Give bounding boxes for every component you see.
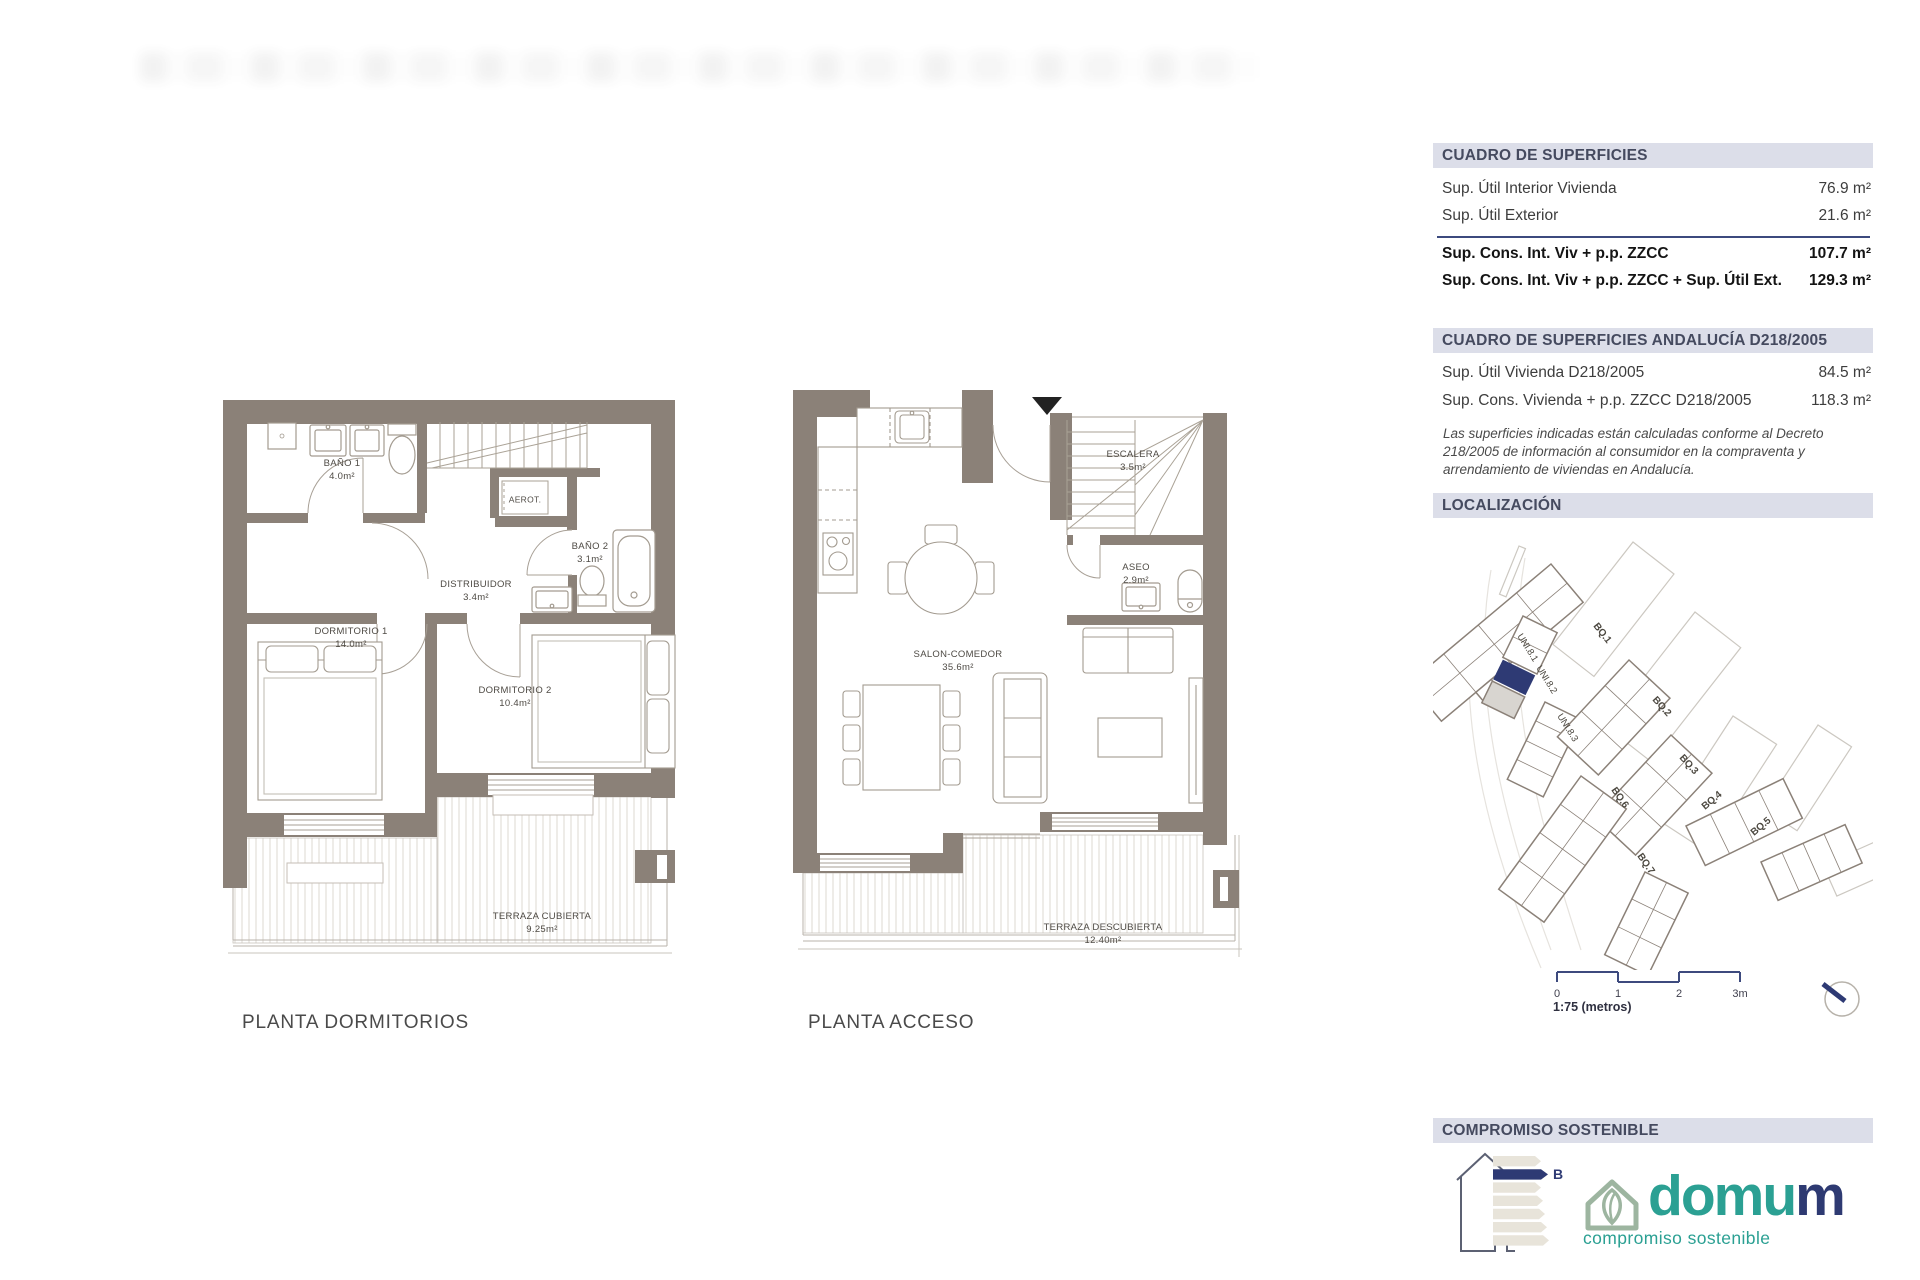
- room-label-terraza-descubierta: TERRAZA DESCUBIERTA12.40m²: [1044, 922, 1163, 948]
- table-row: Sup. Útil Exterior 21.6 m²: [1433, 207, 1873, 225]
- room-label-escalera: ESCALERA3.5m²: [1106, 449, 1159, 475]
- map-label-bq7: BQ.7: [1635, 851, 1657, 876]
- row-value: 107.7 m²: [1809, 245, 1871, 263]
- table-divider: [1437, 236, 1870, 238]
- aseo-door-arc: [1067, 545, 1100, 578]
- surfaces-table-header: CUADRO DE SUPERFICIES: [1433, 143, 1873, 168]
- energy-rating-icon: B: [1447, 1150, 1573, 1270]
- row-value: 129.3 m²: [1809, 272, 1871, 290]
- bed-dormitorio1: [258, 642, 382, 800]
- domum-house-leaf-icon: [1580, 1170, 1646, 1234]
- scale-caption: 1:75 (metros): [1553, 1000, 1632, 1014]
- table-total-row: Sup. Cons. Int. Viv + p.p. ZZCC + Sup. Ú…: [1433, 272, 1873, 290]
- row-value: 21.6 m²: [1818, 207, 1871, 225]
- scale-tick-3: 3m: [1732, 988, 1747, 1000]
- scale-tick-0: 0: [1554, 988, 1560, 1000]
- room-label-aseo: ASEO2.9m²: [1122, 562, 1150, 588]
- row-label: Sup. Útil Exterior: [1442, 207, 1558, 225]
- energy-bar-selected: [1493, 1169, 1548, 1179]
- tv-unit: [1189, 678, 1203, 803]
- entry-door-arc: [993, 425, 1050, 482]
- site-map: UNI.8.1 UNI.8.2 UNI.8.3 BQ.1 BQ.2 BQ.3 B…: [1433, 520, 1873, 970]
- room-label-bano2: BAÑO 23.1m²: [572, 541, 609, 567]
- floorplan-planta-acceso: [790, 385, 1250, 970]
- room-label-distribuidor: DISTRIBUIDOR3.4m²: [440, 579, 512, 605]
- plan-title-dormitorios: PLANTA DORMITORIOS: [242, 1012, 469, 1034]
- plan-title-acceso: PLANTA ACCESO: [808, 1012, 974, 1034]
- bed-dormitorio2: [532, 635, 675, 768]
- row-label: Sup. Cons. Int. Viv + p.p. ZZCC: [1442, 245, 1669, 263]
- table-row: Sup. Útil Vivienda D218/2005 84.5 m²: [1433, 364, 1873, 382]
- legal-note: Las superficies indicadas están calculad…: [1443, 425, 1869, 478]
- room-label-salon-comedor: SALON-COMEDOR35.6m²: [914, 649, 1003, 675]
- table-row: Sup. Útil Interior Vivienda 76.9 m²: [1433, 180, 1873, 198]
- room-label-aerot: AEROT.: [509, 494, 542, 505]
- dining-table: [843, 685, 960, 790]
- floorplan-planta-dormitorios: [220, 395, 680, 970]
- brand-suffix: m: [1795, 1164, 1844, 1228]
- footer-header: COMPROMISO SOSTENIBLE: [1433, 1118, 1873, 1143]
- scan-artifact-band: [140, 52, 1260, 82]
- scale-tick-1: 1: [1615, 988, 1621, 1000]
- row-value: 76.9 m²: [1818, 180, 1871, 198]
- coffee-table: [1098, 718, 1162, 757]
- andalucia-table-header: CUADRO DE SUPERFICIES ANDALUCÍA D218/200…: [1433, 328, 1873, 353]
- bench-sofa: [1083, 628, 1173, 673]
- room-label-terraza-cubierta: TERRAZA CUBIERTA9.25m²: [493, 911, 591, 937]
- row-label: Sup. Útil Vivienda D218/2005: [1442, 364, 1644, 382]
- row-label: Sup. Cons. Vivienda + p.p. ZZCC D218/200…: [1442, 392, 1751, 410]
- brand-primary: domu: [1648, 1164, 1795, 1228]
- room-label-dormitorio1: DORMITORIO 114.0m²: [314, 626, 387, 652]
- brand-wordmark: domum: [1648, 1168, 1844, 1225]
- table-total-row: Sup. Cons. Int. Viv + p.p. ZZCC 107.7 m²: [1433, 245, 1873, 263]
- row-value: 118.3 m²: [1811, 392, 1871, 410]
- scale-bar: 0 1 2 3m: [1552, 968, 1772, 1002]
- room-label-dormitorio2: DORMITORIO 210.4m²: [478, 685, 551, 711]
- scale-tick-2: 2: [1676, 988, 1682, 1000]
- stairs: [1067, 420, 1203, 535]
- map-label-uni82: UNI.8.2: [1533, 664, 1559, 696]
- floorplan-sheet: BAÑO 14.0m² BAÑO 23.1m² DISTRIBUIDOR3.4m…: [0, 0, 1920, 1280]
- entrance-arrow: [1032, 397, 1062, 415]
- north-compass-icon: [1810, 965, 1874, 1029]
- row-value: 84.5 m²: [1818, 364, 1871, 382]
- row-label: Sup. Cons. Int. Viv + p.p. ZZCC + Sup. Ú…: [1442, 272, 1782, 290]
- table-row: Sup. Cons. Vivienda + p.p. ZZCC D218/200…: [1433, 392, 1873, 410]
- room-label-bano1: BAÑO 14.0m²: [324, 458, 361, 484]
- stairs: [427, 422, 587, 468]
- round-table: [888, 525, 994, 614]
- localization-header: LOCALIZACIÓN: [1433, 493, 1873, 518]
- sofa: [993, 673, 1047, 803]
- brand-tagline: compromiso sostenible: [1583, 1228, 1770, 1249]
- energy-rating-letter: B: [1553, 1166, 1563, 1182]
- energy-bars: [1493, 1156, 1549, 1246]
- row-label: Sup. Útil Interior Vivienda: [1442, 180, 1617, 198]
